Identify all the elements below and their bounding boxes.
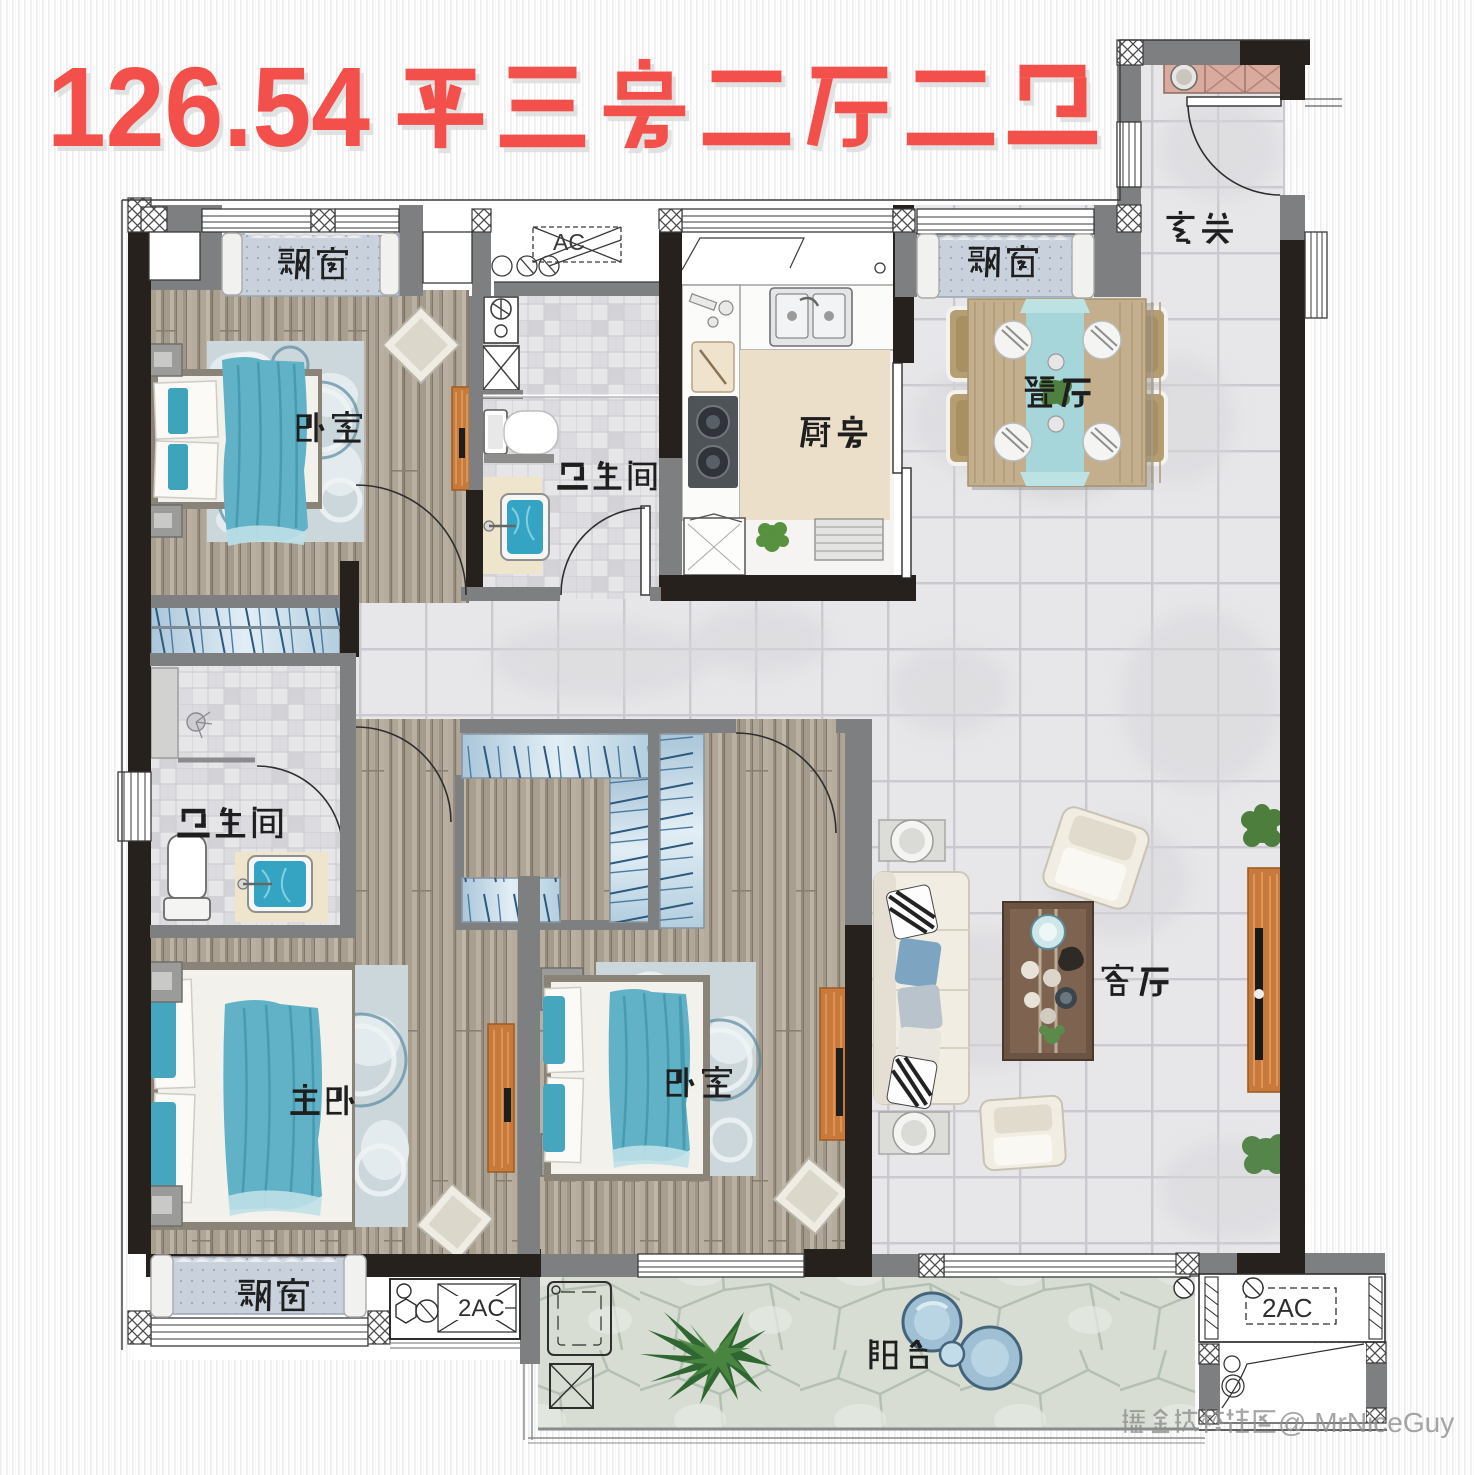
svg-text:2AC: 2AC bbox=[1262, 1293, 1313, 1323]
svg-text:AC: AC bbox=[553, 229, 585, 255]
svg-text:@ MrNiceGuy: @ MrNiceGuy bbox=[1278, 1407, 1454, 1438]
svg-text:2AC: 2AC bbox=[458, 1295, 505, 1322]
svg-text:126.54: 126.54 bbox=[47, 44, 370, 170]
